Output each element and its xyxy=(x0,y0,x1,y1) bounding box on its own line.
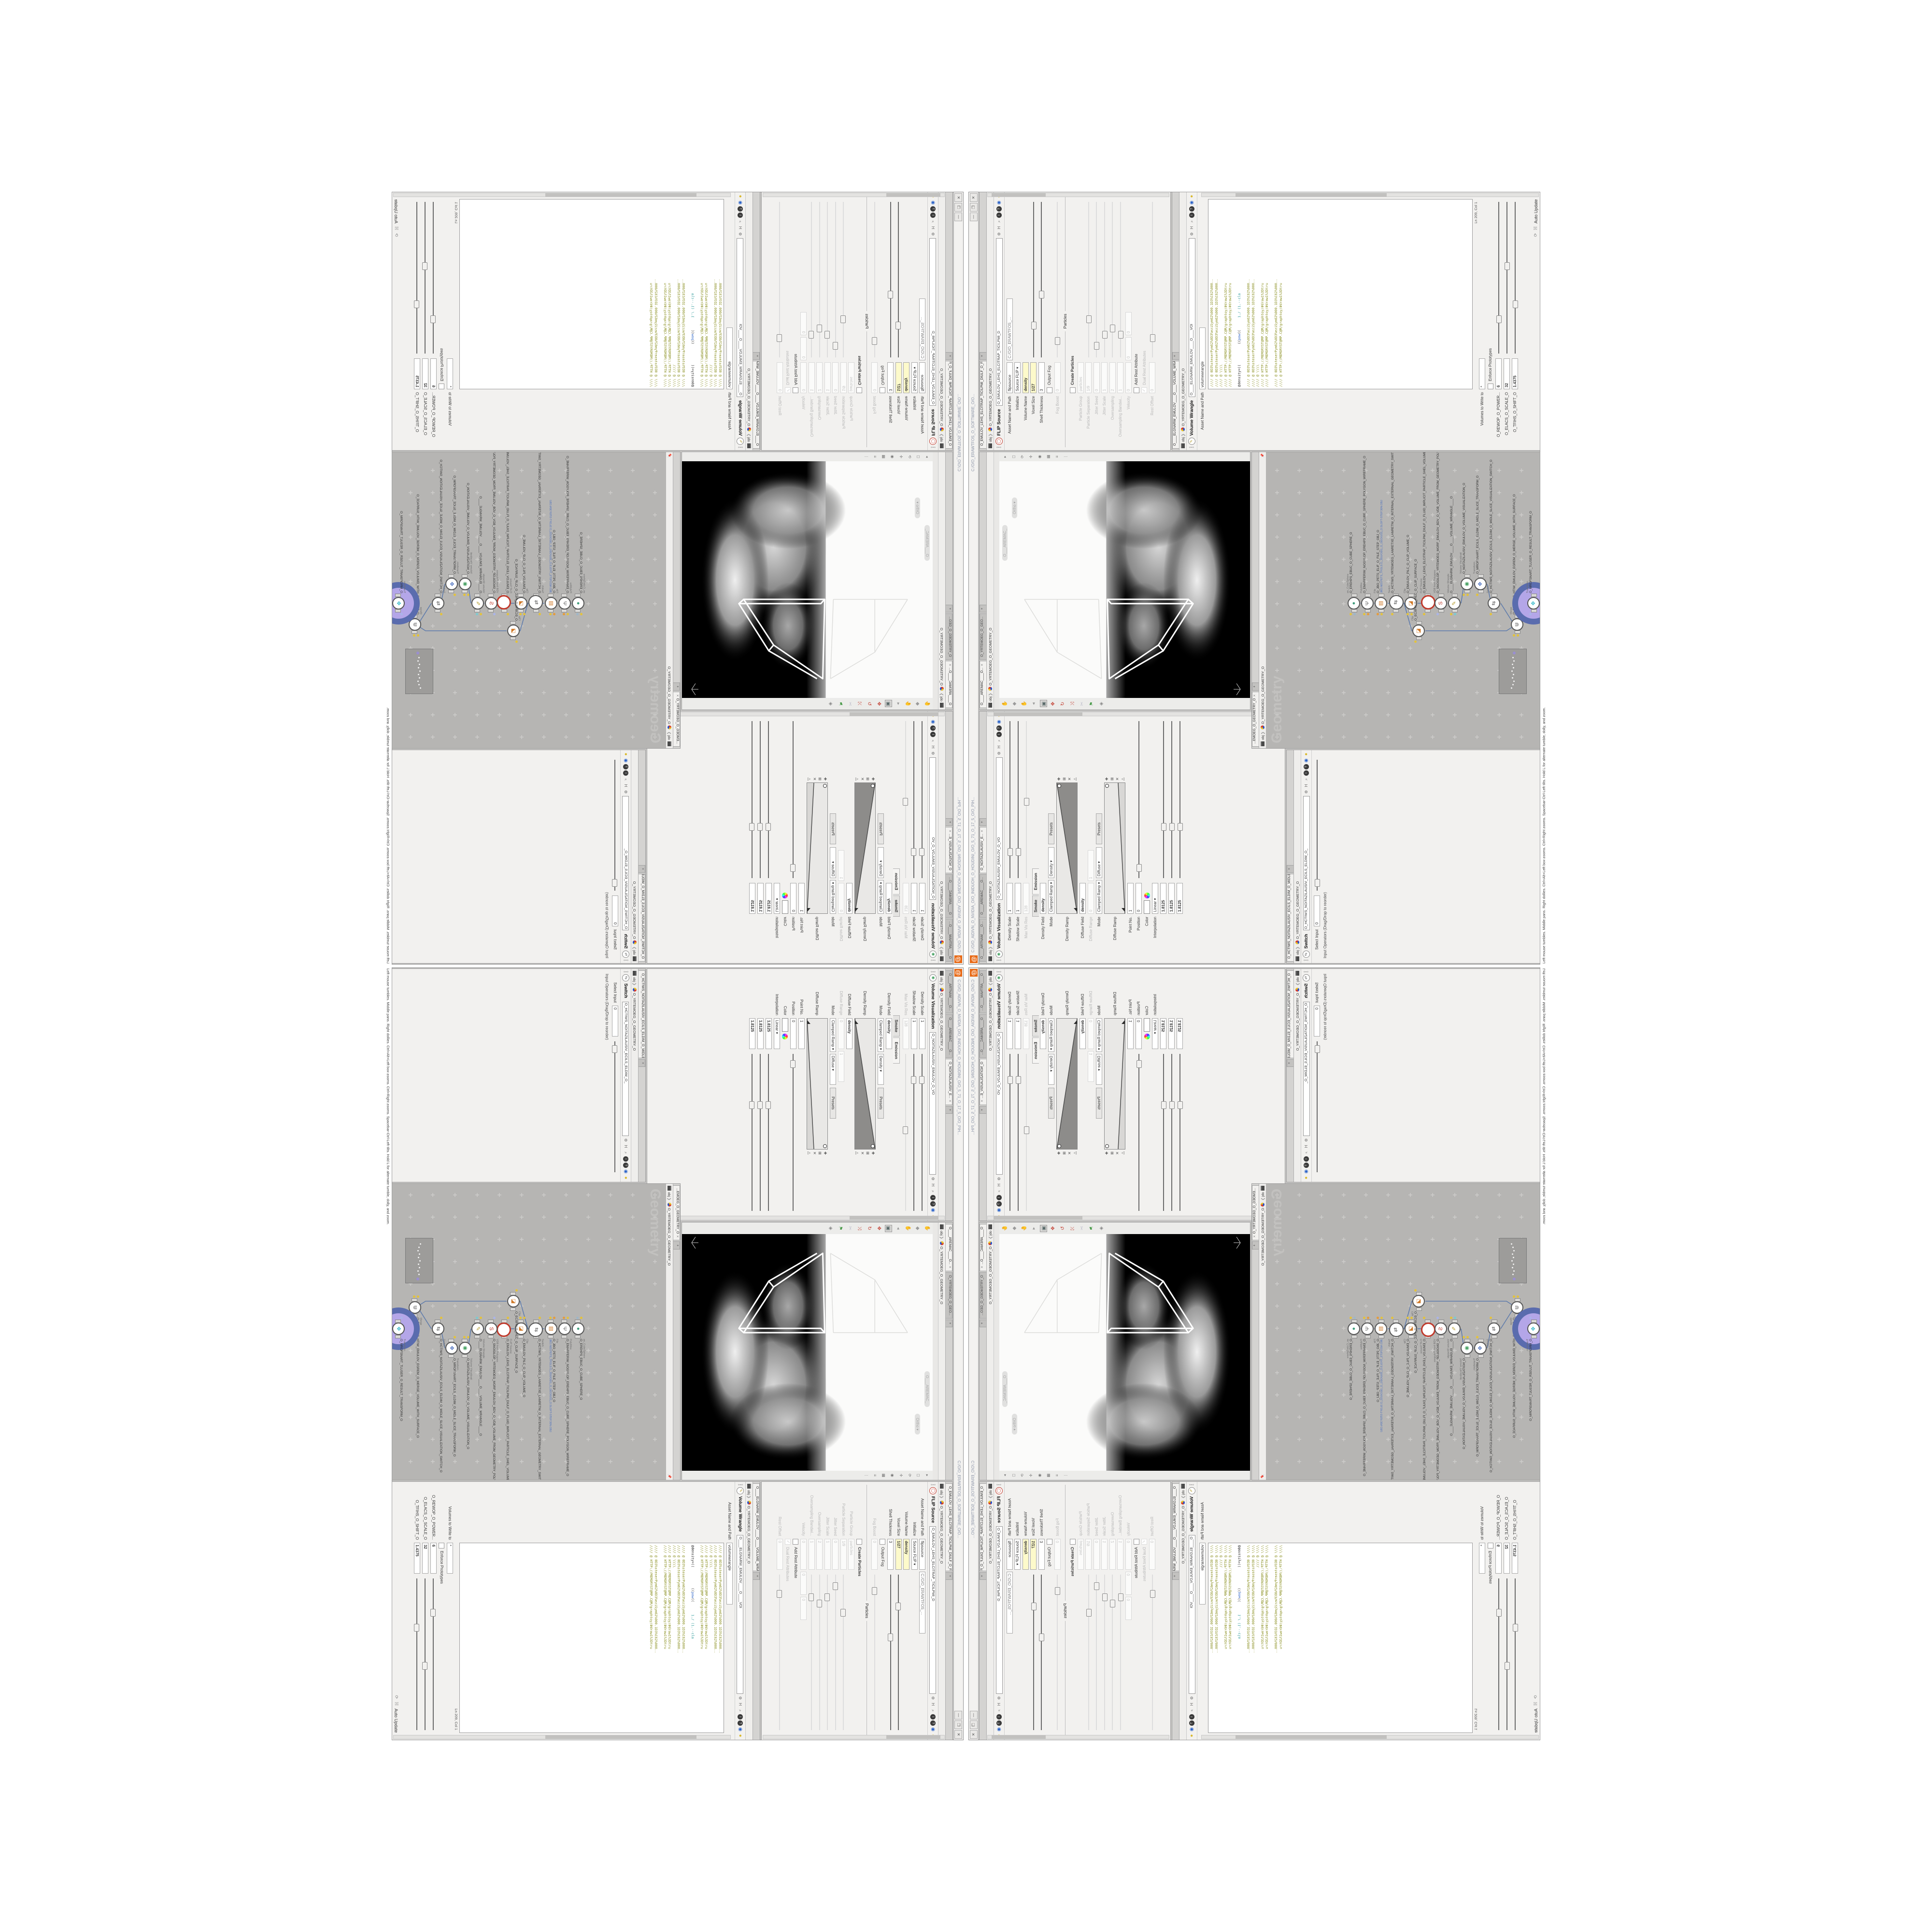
node-name-label[interactable]: O_EMULOV_PILC_O_CLIP_VOLUME_O xyxy=(522,535,526,593)
target-icon[interactable]: ◉ xyxy=(623,758,628,763)
node-flag-dot[interactable] xyxy=(1490,613,1492,615)
param-slider[interactable] xyxy=(1026,721,1027,878)
search-icon[interactable]: ⌕ xyxy=(1304,1150,1309,1155)
target-icon[interactable]: ◉ xyxy=(930,1207,936,1213)
node-name-label[interactable]: O_HCTIWS_NOITAZILAUSIV_ECILS_ELDIM_O_MID… xyxy=(1490,1339,1493,1472)
ramp-button-✚[interactable]: ✚ xyxy=(1105,1151,1109,1155)
breadcrumb-root[interactable]: obj xyxy=(1261,735,1265,740)
node-name-label[interactable]: O_SNOGILOP_YRTEMOEG_MORF_EMULOV_BDV_O_VD… xyxy=(1436,452,1440,593)
checkbox[interactable] xyxy=(1070,387,1076,393)
node-circle[interactable] xyxy=(497,595,511,610)
param-field[interactable]: 3 xyxy=(1038,362,1045,393)
slider-knob[interactable] xyxy=(1315,1045,1320,1053)
help-icon[interactable]: ? xyxy=(1304,1163,1309,1168)
houdini-help-icon[interactable]: H xyxy=(930,1182,936,1188)
param-field[interactable]: Source FLIP ▾ xyxy=(1014,362,1021,393)
breadcrumb-path[interactable]: O_YRTEMOEG_O_GEOMETRY_O xyxy=(633,881,637,939)
node-circle[interactable]: ◪ xyxy=(507,625,520,637)
network-node[interactable]: ◪ClipO_ECAFRUS_PILC_O_CLIP_SURFACE_O xyxy=(1412,623,1427,637)
network-breadcrumb[interactable]: obj❯O_YRTEMOEG_O_GEOMETRY_O📌 xyxy=(666,452,673,748)
param-slider[interactable] xyxy=(760,1054,761,1211)
node-flag-dot[interactable] xyxy=(440,1317,442,1319)
target-icon[interactable]: ◉ xyxy=(1189,1727,1194,1732)
flip-tab-strip[interactable]: O_EMULOV_LEHS_ELCITRAP_TICILPMI_DIULF_O_… xyxy=(980,1482,987,1740)
node-flag-dot[interactable] xyxy=(1377,1317,1379,1319)
param-field[interactable]: 32 xyxy=(422,1543,428,1574)
slider-knob[interactable] xyxy=(1315,879,1320,887)
slider-knob[interactable] xyxy=(423,1662,428,1670)
param-slider[interactable] xyxy=(793,721,794,878)
ramp-button-✚[interactable]: ✚ xyxy=(1105,777,1109,781)
new-tab-button[interactable]: + xyxy=(639,1059,645,1067)
param-field[interactable]: 0 xyxy=(790,1018,796,1049)
param-field[interactable]: 1 xyxy=(798,1018,805,1049)
param-slider[interactable] xyxy=(433,202,434,354)
node-name-label[interactable]: O_HCTIWS_YRTEMOEG_LANRETXE_LANRETNI_O_IN… xyxy=(538,452,541,593)
breadcrumb-root[interactable]: obj xyxy=(1181,437,1185,442)
node-name-label[interactable]: O_HCTIWS_YRTEMOEG_LANRETXE_LANRETNI_O_IN… xyxy=(1391,452,1395,593)
node-flag-dot[interactable] xyxy=(539,613,541,615)
param-field2[interactable]: C:/O/O_ERAWTFOS_... xyxy=(919,1572,925,1634)
switch-breadcrumb[interactable]: obj❯O_YRTEMOEG_O_GEOMETRY_O xyxy=(1294,969,1301,1182)
network-node[interactable]: ◪ClipO_ECAFRUS_PILC_O_CLIP_SURFACE_O xyxy=(505,623,520,637)
info-icon[interactable]: i xyxy=(623,770,628,776)
param-range-max[interactable]: 1 xyxy=(838,1051,844,1082)
wrangle-scrollbar[interactable] xyxy=(1201,1735,1539,1739)
param-field[interactable]: 1.4375 xyxy=(414,358,420,389)
slider-knob[interactable] xyxy=(911,1076,917,1084)
node-name-label[interactable]: O____ELGNARW_EMULOV____O____VOLUME_WRANG… xyxy=(479,1339,483,1436)
param-slider[interactable] xyxy=(1506,202,1507,354)
node-flag-dot[interactable] xyxy=(1423,613,1425,615)
param-field[interactable]: 1.8125 xyxy=(1168,1018,1175,1049)
new-tab-button[interactable]: + xyxy=(946,1572,952,1580)
close-button[interactable]: ✕ xyxy=(970,1730,978,1739)
slider-knob[interactable] xyxy=(1136,864,1142,872)
search-icon[interactable]: ⌕ xyxy=(996,1708,1002,1713)
node-circle[interactable]: ⇆ xyxy=(1488,1322,1500,1335)
checkbox[interactable] xyxy=(880,1539,885,1545)
flip-name-field[interactable]: O_EMULOV_LEHS_ELCITRAP_TICILPMI_D xyxy=(930,238,937,406)
node-name-label[interactable]: O____ELGNARW_EMULOV____O____VOLUME_WRANG… xyxy=(1450,1339,1454,1436)
houdini-help-icon[interactable]: H xyxy=(623,783,628,788)
param-slider[interactable] xyxy=(1096,202,1097,357)
breadcrumb-path[interactable]: O_YRTEMOEG_O_GEOMETRY_O xyxy=(1295,881,1300,939)
network-node[interactable]: ΨPolyWireO_EMARFERIW_NOGYLOP_EREHPS_EBUC… xyxy=(556,1322,571,1337)
param-slider[interactable] xyxy=(914,1054,915,1211)
search-icon[interactable]: ⌕ xyxy=(996,738,1002,743)
slider-knob[interactable] xyxy=(1102,331,1108,339)
param-field[interactable]: 2 xyxy=(816,362,823,393)
wrangle-breadcrumb[interactable]: obj❯O_YRTEMOEG_O_GEOMETRY_O xyxy=(1179,1482,1187,1740)
param-slider[interactable] xyxy=(1163,721,1164,878)
param-field[interactable]: Source FLIP ▾ xyxy=(1014,1539,1021,1570)
param-field[interactable]: * xyxy=(447,358,453,389)
checkbox[interactable]: ✓ xyxy=(1141,387,1147,393)
target-icon[interactable]: ◉ xyxy=(930,200,936,205)
tab-close-icon[interactable]: ✕ xyxy=(1253,1235,1256,1237)
houdini-help-icon[interactable]: H xyxy=(996,225,1002,230)
param-field[interactable]: 1.8125 xyxy=(1177,1018,1183,1049)
viewport-view-icon[interactable]: ✛ xyxy=(1028,454,1034,460)
param-slider[interactable] xyxy=(1009,721,1010,878)
pane-tab[interactable]: O_HCTIWS_NOITAZILAUSIV_ECILS_ELDIM_O_MID… xyxy=(639,874,645,962)
viewport-tool-icon[interactable]: ⤨ xyxy=(856,700,863,708)
param-slider[interactable] xyxy=(1120,1575,1121,1730)
gallery-icon[interactable]: ● xyxy=(1304,1175,1309,1180)
param-field[interactable]: Clamped Ramp ▾ xyxy=(1096,880,1102,914)
network-node[interactable]: ⇆SwitchO_HCTIWS_YRTEMOEG_LANRETXE_LANRET… xyxy=(528,595,543,610)
param-field[interactable]: 1 xyxy=(919,883,925,914)
param-slider[interactable] xyxy=(874,1575,875,1730)
slider-knob[interactable] xyxy=(766,824,771,831)
volvis-tab-strip[interactable]: O____ARTNAM____O...O____AREMAC____O...O_… xyxy=(980,969,987,1221)
node-circle[interactable]: ⇆ xyxy=(528,1322,543,1337)
pane-tab[interactable]: O_EMULOV_LEHS_ELCITRAP_TICILPMI_DIULF_O_… xyxy=(946,1483,952,1571)
wrangle-tab-strip[interactable]: O____ELGNARW_EMULOV____O____VOLUME_WRANG… xyxy=(753,192,760,450)
node-circle[interactable]: ✎ xyxy=(1448,1322,1461,1335)
viewport-view-icon[interactable]: ◉ xyxy=(1037,454,1043,460)
param-slider[interactable] xyxy=(615,760,616,891)
param-slider[interactable] xyxy=(1033,1575,1034,1730)
param-field[interactable]: 1 xyxy=(1127,883,1134,914)
node-flag-dot[interactable] xyxy=(1463,594,1465,596)
new-tab-button[interactable]: + xyxy=(1172,1572,1179,1580)
node-flag-dot[interactable] xyxy=(476,1317,478,1319)
pin-icon[interactable]: 📌 xyxy=(668,1474,671,1478)
param-slider[interactable] xyxy=(914,721,915,878)
param-slider[interactable] xyxy=(890,202,891,357)
slider-knob[interactable] xyxy=(872,1587,877,1595)
node-name-label[interactable]: O_EMULOV_PILC_O_CLIP_VOLUME_O xyxy=(522,1339,526,1397)
node-flag-dot[interactable] xyxy=(1436,1317,1439,1319)
checkbox[interactable]: ✓ xyxy=(785,1539,791,1545)
search-icon[interactable]: ⌕ xyxy=(930,1708,936,1713)
flip-tab-strip[interactable]: O_EMULOV_LEHS_ELCITRAP_TICILPMI_DIULF_O_… xyxy=(945,1482,952,1740)
ramp-button-△[interactable]: △ xyxy=(1121,1151,1125,1155)
node-flag-dot[interactable] xyxy=(1391,1317,1393,1319)
gear-icon[interactable]: ⚙ xyxy=(996,231,1002,237)
param-slider[interactable] xyxy=(425,202,426,354)
ramp-button-✚[interactable]: ✚ xyxy=(1057,777,1061,781)
viewer-tab-strip[interactable]: O____AREMAC____O...✕O_YRTEMOEG_O_GEO...+ xyxy=(980,1222,987,1480)
slider-knob[interactable] xyxy=(895,1603,901,1610)
node-circle[interactable]: ⇆ xyxy=(432,1322,444,1335)
viewport-image[interactable]: O___AREMAC_ Ortho ▾ xyxy=(682,461,933,698)
breadcrumb-path[interactable]: O_YRTEMOEG_O_GEOMETRY_O xyxy=(747,369,752,426)
gear-icon[interactable]: ⚙ xyxy=(930,751,936,756)
minimize-button[interactable]: — xyxy=(954,213,962,221)
wrangle-tab-strip[interactable]: O____ELGNARW_EMULOV____O____VOLUME_WRANG… xyxy=(1172,1482,1179,1740)
viewport-tool-icon[interactable]: ◆ xyxy=(1011,700,1018,708)
param-field[interactable]: 1/27 xyxy=(1030,1539,1037,1570)
network-node[interactable]: ◉Volume VisualizatiO_NOITAZILAUSIV_EMULO… xyxy=(1461,1342,1475,1356)
param-slider[interactable] xyxy=(843,1575,844,1730)
param-field[interactable]: 0 xyxy=(832,1539,838,1570)
pane-tab[interactable]: O_YRTEMOEG_O_GEO... xyxy=(946,613,952,660)
subtab-emission[interactable]: Emission xyxy=(1032,1037,1039,1064)
search-icon[interactable]: ⌕ xyxy=(930,1189,936,1194)
node-name-label[interactable]: O_MROFSNART_TLUSER_O_RESULT_TRANSFORM_O xyxy=(399,1339,403,1421)
new-tab-button[interactable]: + xyxy=(673,1241,680,1249)
param-slider[interactable] xyxy=(1088,202,1089,357)
param-slider[interactable] xyxy=(1096,1575,1097,1730)
node-name-label[interactable]: O_MROFSNART_TLUSER_O_RESULT_TRANSFORM_O xyxy=(399,511,403,593)
asset-name-field[interactable]: volumewrangle xyxy=(726,327,733,389)
node-name-label[interactable]: O_JBO_PETS_ELIF_O_FILE_STEP_OBJ_O xyxy=(552,500,556,593)
tab-close-icon[interactable]: ✕ xyxy=(676,695,679,697)
volvis-tab-strip[interactable]: O____ARTNAM____O...O____AREMAC____O...O_… xyxy=(980,711,987,963)
breadcrumb-root[interactable]: obj xyxy=(940,1231,944,1236)
breadcrumb-root[interactable]: obj xyxy=(747,437,752,442)
slider-knob[interactable] xyxy=(1024,1126,1029,1134)
param-slider[interactable] xyxy=(1057,202,1058,357)
slider-knob[interactable] xyxy=(1178,1101,1183,1109)
presets-button[interactable]: Presets xyxy=(830,1088,836,1119)
viewport-view-icon[interactable]: ◻ xyxy=(915,454,921,460)
node-flag-dot[interactable] xyxy=(1476,1336,1478,1338)
viewport-tool-icon[interactable]: ▣ xyxy=(885,700,892,708)
close-button[interactable]: ✕ xyxy=(954,193,962,202)
info-icon[interactable]: i xyxy=(1304,1156,1309,1162)
pane-nav-arrows[interactable]: ⇧⇩ xyxy=(997,970,1002,973)
pane-tab[interactable]: O_EMULOV_LEHS_ELCITRAP_TICILPMI_DIULF_O_… xyxy=(946,361,952,449)
wrangle-name-field[interactable]: O____ELGNARW_EMULOV____O____VOI xyxy=(1189,238,1195,397)
volvis-scrollbar[interactable] xyxy=(648,1216,945,1220)
help-icon[interactable]: ? xyxy=(930,1720,936,1726)
pane-nav-arrows[interactable]: ⇧⇩ xyxy=(997,446,1002,449)
ramp-button-△[interactable]: △ xyxy=(1121,777,1125,781)
vex-code-editor[interactable]: //// @ 0D3%steserPym62%0D3%eziSym62%000.… xyxy=(1208,1543,1473,1733)
pane-tab[interactable]: O_YRTEMOEG_O_GEO... xyxy=(980,613,986,660)
param-field[interactable]: density xyxy=(886,883,892,914)
node-flag-dot[interactable] xyxy=(1367,1317,1369,1319)
color-wheel-icon[interactable] xyxy=(782,1034,788,1039)
help-icon[interactable]: ? xyxy=(996,206,1002,212)
viewport-view-icon[interactable]: ✛ xyxy=(1028,1473,1034,1478)
param-field[interactable]: 128 xyxy=(903,1018,909,1049)
pane-nav-arrows[interactable]: ⇧⇩ xyxy=(1190,1483,1194,1486)
param-field[interactable]: 0 xyxy=(1088,883,1094,914)
node-flag-dot[interactable] xyxy=(467,1336,469,1338)
param-dropdown2[interactable]: Diffuse ▾ xyxy=(830,1054,836,1085)
param-dropdown2[interactable]: Density ▾ xyxy=(878,1054,884,1085)
param-slider[interactable] xyxy=(1138,1054,1139,1211)
volvis-name-field[interactable]: O_NOITAZILAUSIV_EMULOV_O_VO xyxy=(930,1032,937,1175)
slider-knob[interactable] xyxy=(1016,1076,1021,1084)
node-circle[interactable]: Ψ xyxy=(558,597,571,610)
title-bar[interactable]: @ C:/O/O_AIDIVN_O_NVIDIA_O/O_INIDUOH_O_H… xyxy=(953,192,963,964)
param-slider[interactable] xyxy=(1317,760,1318,891)
param-range-max[interactable]: 1 xyxy=(1088,1051,1094,1082)
breadcrumb-root[interactable]: obj xyxy=(1261,1192,1265,1197)
target-icon[interactable]: ◉ xyxy=(738,1727,743,1732)
pane-nav-arrows[interactable]: ⇧⇩ xyxy=(738,446,743,449)
tab-close-icon[interactable]: ✕ xyxy=(981,1266,984,1268)
network-node[interactable]: ◪ClipO_ECAFRUS_PILC_O_CLIP_SURFACE_O xyxy=(505,1295,520,1309)
node-circle[interactable]: S xyxy=(1435,597,1447,610)
wrangle-breadcrumb[interactable]: obj❯O_YRTEMOEG_O_GEOMETRY_O xyxy=(1179,192,1187,450)
houdini-help-icon[interactable]: H xyxy=(1304,1144,1309,1149)
asset-name-field[interactable]: volumewrangle xyxy=(1199,1543,1206,1605)
help-icon[interactable]: ? xyxy=(623,764,628,769)
node-flag-dot[interactable] xyxy=(1517,634,1519,637)
slider-knob[interactable] xyxy=(612,879,618,887)
viewport-view-icon[interactable]: ⋮ xyxy=(1063,454,1069,460)
info-icon[interactable]: i xyxy=(930,213,936,218)
param-slider[interactable] xyxy=(768,1054,769,1211)
gallery-icon[interactable]: ● xyxy=(623,752,628,757)
gear-icon[interactable]: ⚙ xyxy=(738,231,743,237)
houdini-help-icon[interactable]: H xyxy=(623,1144,628,1149)
breadcrumb-path[interactable]: O_YRTEMOEG_O_GEOMETRY_O xyxy=(940,369,944,426)
param-field[interactable]: 3 xyxy=(887,362,894,393)
breadcrumb-path[interactable]: O_YRTEMOEG_O_GEOMETRY_O xyxy=(988,1247,993,1305)
param-field[interactable]: 1.8125 xyxy=(766,883,772,914)
param-field[interactable]: 6 xyxy=(430,358,437,389)
network-canvas[interactable]: Geometry ●an_CubeSphereO_EREHPS_EBUC_O_C… xyxy=(392,1184,666,1480)
node-flag-dot[interactable] xyxy=(1391,613,1393,615)
node-flag-dot[interactable] xyxy=(523,613,526,615)
param-field[interactable]: 1/27 xyxy=(895,1539,902,1570)
gallery-icon[interactable]: ● xyxy=(1304,752,1309,757)
viewport-tool-icon[interactable]: ⚑ xyxy=(1088,700,1095,708)
slider-knob[interactable] xyxy=(1513,1624,1518,1632)
switch-tab-strip[interactable]: O_HCTIWS_NOITAZILAUSIV_ECILS_ELDIM_O_MID… xyxy=(638,969,645,1182)
param-field[interactable]: 1 xyxy=(824,1539,831,1570)
breadcrumb-root[interactable]: obj xyxy=(988,1490,993,1495)
wrangle-scrollbar[interactable] xyxy=(393,1735,731,1739)
volvis-scrollbar[interactable] xyxy=(987,712,1284,716)
node-circle[interactable]: S xyxy=(485,597,497,610)
wrangle-tab-strip[interactable]: O____ELGNARW_EMULOV____O____VOLUME_WRANG… xyxy=(753,1482,760,1740)
info-icon[interactable]: i xyxy=(623,1156,628,1162)
viewer-tab-strip[interactable]: O____AREMAC____O...✕O_YRTEMOEG_O_GEO...+ xyxy=(980,452,987,710)
info-icon[interactable]: i xyxy=(996,1714,1002,1719)
ramp-button-△[interactable]: △ xyxy=(1073,1151,1077,1155)
viewport-tool-icon[interactable]: ◈ xyxy=(1098,1225,1105,1232)
breadcrumb-root[interactable]: obj xyxy=(940,696,944,701)
viewer-tab-strip[interactable]: O____AREMAC____O...✕O_YRTEMOEG_O_GEO...+ xyxy=(945,452,952,710)
checkbox[interactable] xyxy=(1488,1543,1493,1548)
node-flag-dot[interactable] xyxy=(417,634,419,637)
node-name-label[interactable]: O_EMARFERIW_NOGYLOP_EREHPS_EBUC_O_CUBE_S… xyxy=(1363,456,1367,593)
help-icon[interactable]: ? xyxy=(623,1163,628,1168)
breadcrumb-path[interactable]: O_YRTEMOEG_O_GEOMETRY_O xyxy=(940,881,944,939)
viewport-tool-icon[interactable]: ◈ xyxy=(827,700,834,708)
node-circle[interactable]: ● xyxy=(572,597,584,610)
param-field[interactable]: 1.8125 xyxy=(1160,883,1166,914)
param-slider[interactable] xyxy=(1498,202,1499,354)
maximize-button[interactable]: ❐ xyxy=(970,203,978,212)
pane-tab[interactable]: O____AREMAC____O... xyxy=(946,874,952,918)
node-flag-dot[interactable] xyxy=(1363,613,1365,615)
param-slider[interactable] xyxy=(752,721,753,878)
breadcrumb-path[interactable]: O_YRTEMOEG_O_GEOMETRY_O xyxy=(668,667,672,724)
breadcrumb-path[interactable]: O_YRTEMOEG_O_GEOMETRY_O xyxy=(940,1247,944,1305)
node-flag-dot[interactable] xyxy=(523,1317,526,1319)
info-icon[interactable]: i xyxy=(1189,213,1194,218)
node-name-label[interactable]: O_ECAFRUS_PILC_O_CLIP_SURFACE_O xyxy=(514,559,518,621)
checkbox[interactable] xyxy=(880,387,885,393)
param-field[interactable]: 1.8125 xyxy=(1177,883,1183,914)
viewport-tool-icon[interactable]: ◆ xyxy=(914,700,921,708)
ramp-buttons[interactable]: ✚⊞✕△ xyxy=(1057,1151,1077,1155)
ramp-buttons[interactable]: ✚⊞✕△ xyxy=(807,777,827,781)
param-dropdown2[interactable]: Diffuse ▾ xyxy=(1096,1054,1102,1085)
node-flag-dot[interactable] xyxy=(549,613,552,615)
param-slider[interactable] xyxy=(615,1041,616,1172)
auto-update-dropdown[interactable]: Auto Update xyxy=(394,199,399,224)
network-node[interactable]: ●an_CubeSphereO_EREHPS_EBUC_O_CUBE_SPHER… xyxy=(570,595,584,610)
param-field[interactable]: 1/9 xyxy=(1085,1539,1092,1570)
param-slider[interactable] xyxy=(1018,1054,1019,1211)
viewport-tool-icon[interactable]: ✋ xyxy=(904,1225,911,1232)
pane-nav-arrows[interactable]: ⇧⇩ xyxy=(624,970,628,973)
param-field[interactable]: * xyxy=(447,1543,453,1574)
volvis-name-field[interactable]: O_NOITAZILAUSIV_EMULOV_O_VO xyxy=(930,757,937,900)
param-field[interactable]: 6 xyxy=(1495,358,1502,389)
ramp-widget[interactable] xyxy=(1056,782,1078,914)
slider-knob[interactable] xyxy=(1055,337,1060,345)
subtab-smoke[interactable]: Smoke xyxy=(893,1015,900,1037)
network-node[interactable]: ◉Volume VisualizatiO_NOITAZILAUSIV_EMULO… xyxy=(457,576,471,590)
subtab-emission[interactable]: Emission xyxy=(893,1037,900,1064)
slider-knob[interactable] xyxy=(1150,1590,1155,1598)
param-field[interactable]: flipsource xyxy=(919,362,925,393)
network-tab-strip[interactable]: ...EMOEG_O_GEOMETRY_O✕+ xyxy=(673,452,680,748)
houdini-help-icon[interactable]: H xyxy=(996,744,1002,750)
node-name-label[interactable]: O_EREHPS_EBUC_O_CUBE_SPHERE_O xyxy=(1350,1339,1353,1400)
help-icon[interactable]: ? xyxy=(930,1201,936,1207)
pane-tab[interactable]: O_YRTEMOEG_O_GEO... xyxy=(980,1272,986,1319)
title-bar[interactable]: @ C:/O/O_AIDIVN_O_NVIDIA_O/O_INIDUOH_O_H… xyxy=(969,192,979,964)
viewport-view-icon[interactable]: ⋮ xyxy=(863,454,869,460)
viewport-tool-icon[interactable]: ✥ xyxy=(875,700,882,708)
viewport-tool-icon[interactable]: ◈ xyxy=(1098,700,1105,708)
color-swatch[interactable] xyxy=(782,1018,788,1032)
pane-nav-arrows[interactable]: ⇧⇩ xyxy=(624,959,628,962)
node-name-label[interactable]: O_EMULOV_LEHS_ELCITRAP_TICILPMI_DIULF_O_… xyxy=(1423,1339,1427,1480)
param-field[interactable]: 6 xyxy=(1495,1543,1502,1574)
param-slider[interactable] xyxy=(1088,1575,1089,1730)
ramp-button-⊞[interactable]: ⊞ xyxy=(1110,777,1114,781)
node-circle[interactable]: ⇆ xyxy=(1389,595,1404,610)
node-flag-dot[interactable] xyxy=(549,1317,552,1319)
param-field[interactable]: 1 xyxy=(1117,362,1123,393)
node-name-label[interactable]: O_EREHPS_EBUC_O_CUBE_SPHERE_O xyxy=(1350,532,1353,593)
viewport-view-icon[interactable]: ≡ xyxy=(1054,1473,1060,1478)
param-field[interactable]: 0 xyxy=(1149,1539,1155,1570)
vex-code-editor[interactable]: //// @ 0D3%steserPym62%0D3%eziSym62%000.… xyxy=(459,199,724,389)
help-icon[interactable]: ? xyxy=(930,206,936,212)
color-wheel-icon[interactable] xyxy=(1144,1034,1150,1039)
viewport-camera-mode-ghost[interactable]: Ortho ▾ xyxy=(1012,497,1017,518)
node-name-label[interactable]: O_HCTIWS_NOITAZILAUSIV_ECILS_ELDIM_O_MID… xyxy=(439,1339,443,1472)
checkbox[interactable] xyxy=(856,387,862,393)
param-field[interactable]: 1 xyxy=(919,1018,925,1049)
node-flag-dot[interactable] xyxy=(476,613,478,615)
node-flag-dot[interactable] xyxy=(1353,1317,1356,1319)
breadcrumb-path[interactable]: O_YRTEMOEG_O_GEOMETRY_O xyxy=(988,993,993,1051)
new-tab-button[interactable]: + xyxy=(1287,865,1293,873)
param-field[interactable]: 32 xyxy=(1504,1543,1510,1574)
checkbox[interactable] xyxy=(1070,1539,1076,1545)
breadcrumb-root[interactable]: obj xyxy=(1295,977,1300,982)
node-name-label[interactable]: O_EMULOV_LEHS_ELCITRAP_TICILPMI_DIULF_O_… xyxy=(506,1339,510,1480)
info-icon[interactable]: i xyxy=(1189,1714,1194,1719)
viewport-right-toolbar[interactable]: ▸◻⟳✛◉▦≡⋮ xyxy=(682,452,933,462)
